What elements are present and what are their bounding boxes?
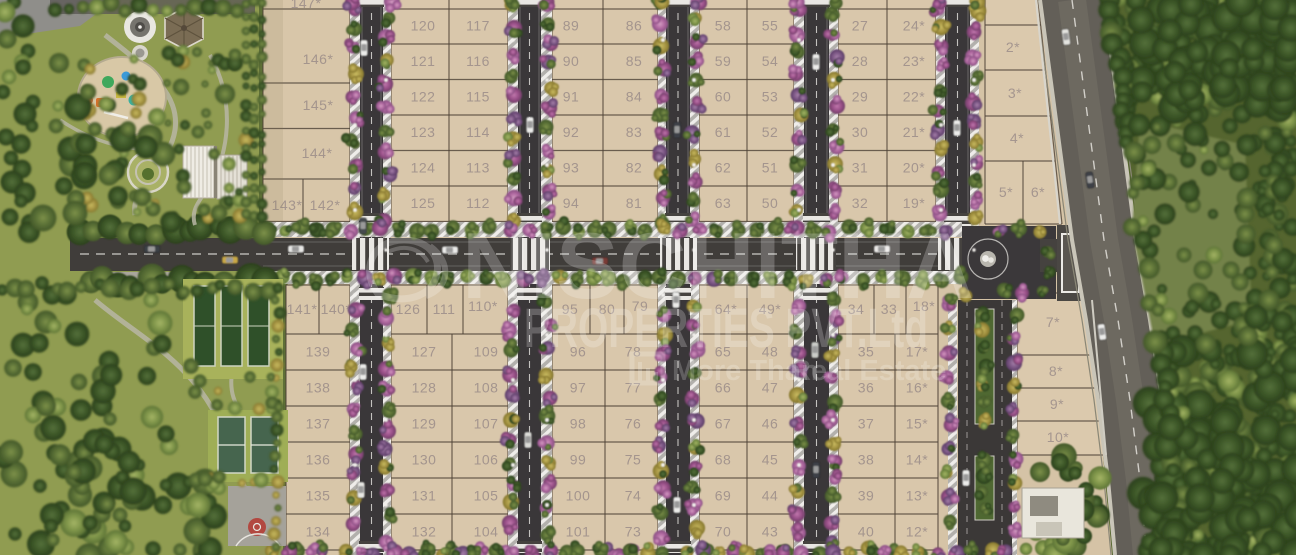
svg-text:135: 135 [306,488,331,504]
svg-text:52: 52 [762,124,779,140]
svg-text:67: 67 [715,416,732,432]
svg-text:53: 53 [762,89,779,105]
svg-text:93: 93 [563,160,580,176]
svg-text:20*: 20* [903,160,926,176]
svg-text:46: 46 [762,416,779,432]
svg-text:98: 98 [570,416,587,432]
svg-text:112: 112 [466,195,490,211]
svg-text:PROPERTIES PVT.Ltd: PROPERTIES PVT.Ltd [524,296,928,359]
svg-text:7*: 7* [1046,314,1060,330]
svg-text:19*: 19* [903,195,926,211]
svg-text:113: 113 [466,160,490,176]
svg-text:130: 130 [412,452,437,468]
svg-text:83: 83 [626,124,643,140]
svg-text:125: 125 [411,195,436,211]
svg-text:89: 89 [563,18,580,34]
svg-text:61: 61 [715,124,732,140]
svg-text:94: 94 [563,195,580,211]
svg-text:136: 136 [306,452,331,468]
svg-text:3*: 3* [1008,85,1022,101]
svg-text:31: 31 [852,160,869,176]
svg-text:127: 127 [412,344,437,360]
svg-text:144*: 144* [302,145,333,161]
svg-text:73: 73 [625,524,642,540]
svg-text:85: 85 [626,53,643,69]
svg-text:117: 117 [466,18,490,34]
svg-text:106: 106 [474,452,499,468]
svg-text:13*: 13* [906,488,929,504]
svg-text:123: 123 [411,124,436,140]
svg-text:140*: 140* [321,301,352,317]
svg-text:68: 68 [715,452,732,468]
svg-text:40: 40 [858,524,875,540]
svg-text:108: 108 [474,380,499,396]
svg-text:132: 132 [412,524,437,540]
svg-text:101: 101 [566,524,591,540]
svg-text:Real Estate: Real Estate [790,355,946,387]
svg-text:90: 90 [563,53,580,69]
svg-text:54: 54 [762,53,779,69]
svg-text:59: 59 [715,53,732,69]
svg-text:6*: 6* [1031,184,1045,200]
svg-text:4*: 4* [1010,130,1024,146]
svg-text:146*: 146* [303,51,334,67]
svg-text:60: 60 [715,89,732,105]
svg-text:120: 120 [411,18,436,34]
svg-text:104: 104 [474,524,499,540]
svg-text:27: 27 [852,18,869,34]
svg-text:30: 30 [852,124,869,140]
svg-text:22*: 22* [903,89,926,105]
svg-text:2*: 2* [1006,39,1020,55]
svg-text:109: 109 [474,344,499,360]
svg-text:37: 37 [858,416,875,432]
svg-text:10*: 10* [1047,429,1070,445]
svg-text:14*: 14* [906,452,929,468]
svg-text:23*: 23* [903,53,926,69]
svg-text:50: 50 [762,195,779,211]
svg-text:8*: 8* [1049,363,1063,379]
svg-text:38: 38 [858,452,875,468]
svg-text:105: 105 [474,488,499,504]
svg-text:43: 43 [762,524,779,540]
svg-text:124: 124 [411,160,436,176]
svg-text:138: 138 [306,380,331,396]
svg-text:111: 111 [433,301,456,317]
svg-text:99: 99 [570,452,587,468]
svg-text:134: 134 [306,524,331,540]
svg-text:147*: 147* [291,0,322,11]
svg-text:63: 63 [715,195,732,211]
svg-text:107: 107 [474,416,499,432]
svg-text:82: 82 [626,160,643,176]
svg-text:100: 100 [566,488,591,504]
svg-text:137: 137 [306,416,331,432]
svg-text:74: 74 [625,488,642,504]
svg-text:70: 70 [715,524,732,540]
svg-text:86: 86 [626,18,643,34]
svg-text:92: 92 [563,124,580,140]
svg-text:115: 115 [466,89,490,105]
svg-text:129: 129 [412,416,437,432]
svg-text:12*: 12* [906,524,929,540]
svg-text:45: 45 [762,452,779,468]
svg-text:114: 114 [466,124,490,140]
svg-text:51: 51 [762,160,779,176]
svg-text:32: 32 [852,195,869,211]
svg-text:131: 131 [412,488,437,504]
svg-text:122: 122 [411,89,436,105]
svg-text:84: 84 [626,89,643,105]
svg-text:28: 28 [852,53,869,69]
svg-text:141*: 141* [287,301,318,317]
svg-text:128: 128 [412,380,437,396]
svg-text:24*: 24* [903,18,926,34]
svg-text:58: 58 [715,18,732,34]
svg-text:15*: 15* [906,416,929,432]
svg-text:5*: 5* [999,184,1013,200]
svg-text:142*: 142* [310,197,341,213]
svg-text:44: 44 [762,488,779,504]
svg-text:116: 116 [466,53,490,69]
svg-text:121: 121 [411,53,436,69]
svg-text:62: 62 [715,160,732,176]
svg-text:91: 91 [563,89,580,105]
svg-text:29: 29 [852,89,869,105]
svg-text:75: 75 [625,452,642,468]
svg-text:76: 76 [625,416,642,432]
svg-text:145*: 145* [303,97,334,113]
svg-text:21*: 21* [903,124,926,140]
svg-text:69: 69 [715,488,732,504]
svg-text:81: 81 [626,195,643,211]
svg-text:126: 126 [396,301,421,317]
svg-text:39: 39 [858,488,875,504]
svg-text:139: 139 [306,344,331,360]
svg-text:97: 97 [570,380,587,396]
svg-text:55: 55 [762,18,779,34]
svg-text:9*: 9* [1050,396,1064,412]
